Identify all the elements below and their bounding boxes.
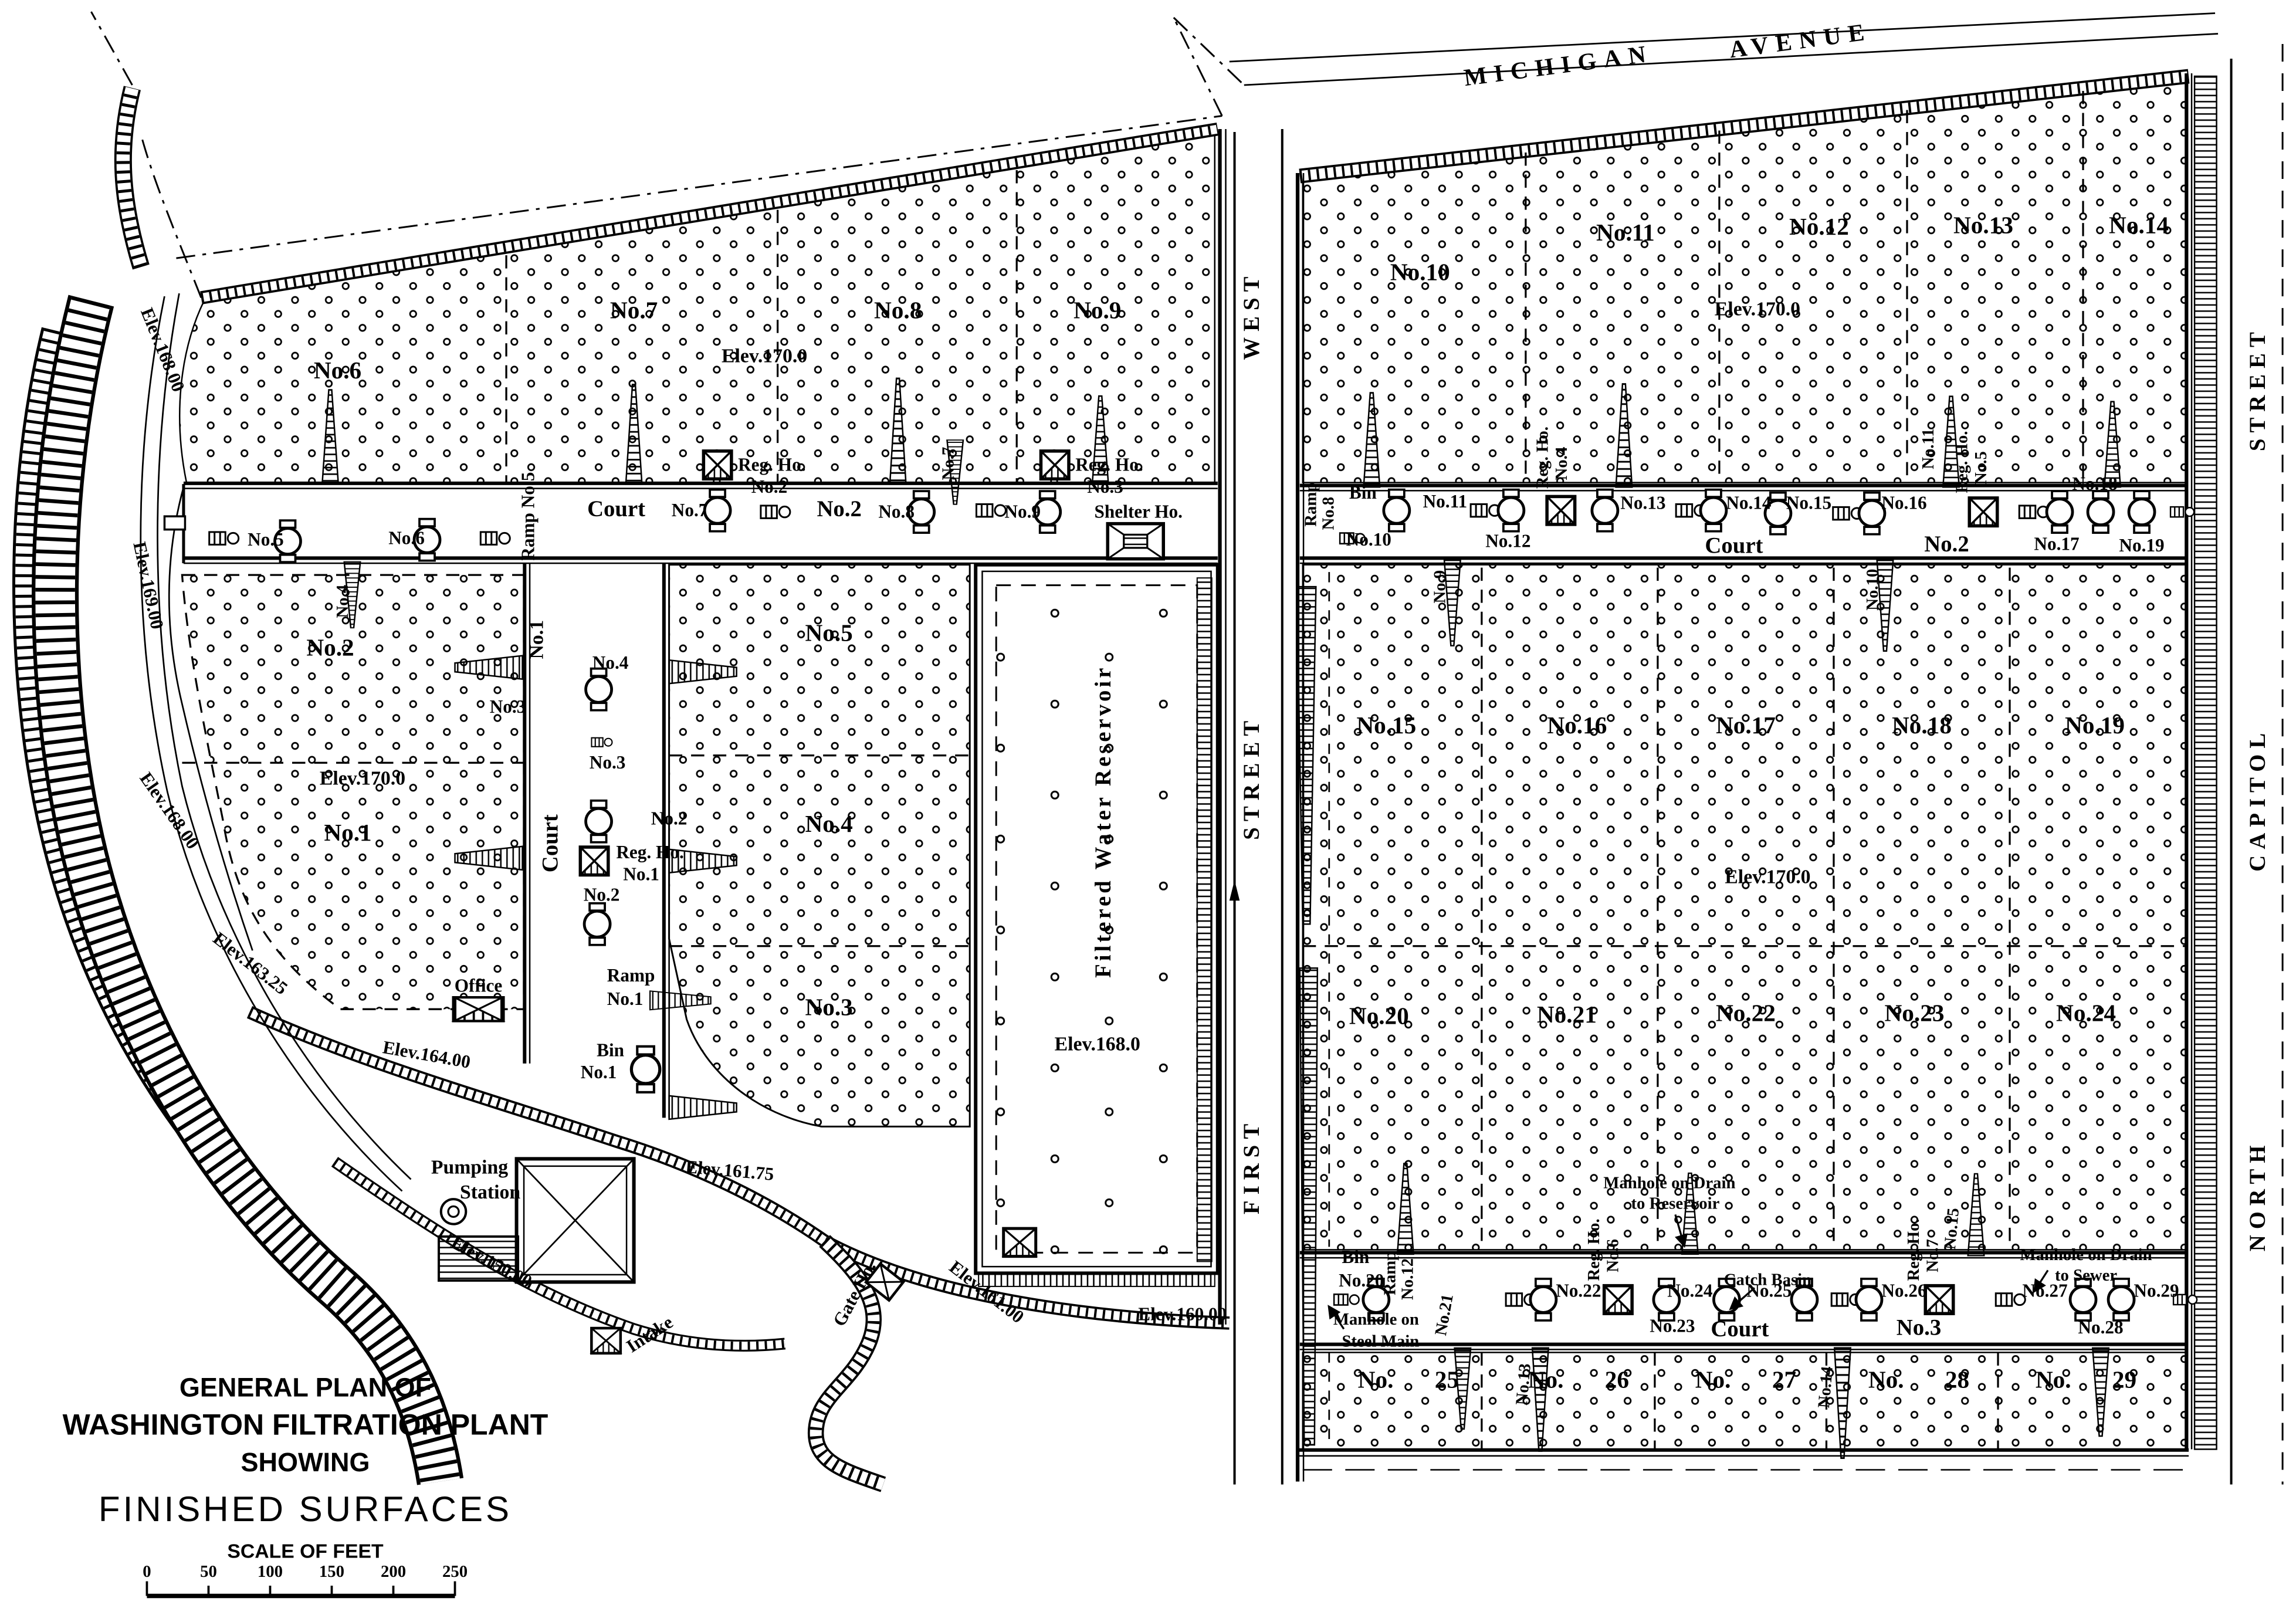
court-number-label: No.2 <box>817 496 861 522</box>
pumping-station-label: Pumping <box>431 1156 508 1178</box>
pumping-station-label: Station <box>460 1181 520 1203</box>
bin-label: No.18 <box>2072 473 2117 494</box>
regho-label: Reg. Ho. <box>1075 455 1143 475</box>
valve-icon <box>1996 1294 2025 1306</box>
title-line: WASHINGTON FILTRATION PLANT <box>63 1408 548 1441</box>
plan-page: MICHIGAN AVENUE WEST STREET FIRST STREET… <box>0 0 2296 1615</box>
bed-label: No. 26 <box>1528 1366 1629 1393</box>
bed-label: No.17 <box>1716 712 1776 739</box>
bed-label: No.8 <box>874 297 922 324</box>
bin-label: No.16 <box>1881 493 1926 513</box>
bin-icon <box>1498 490 1524 531</box>
east-mid-beds <box>1303 565 2186 1250</box>
regho-label: No.1 <box>623 864 659 884</box>
court-number-label: No.2 <box>1924 531 1969 557</box>
bed-label: No.3 <box>805 993 852 1020</box>
bin-label: No.6 <box>388 528 425 549</box>
reservoir-label: Filtered Water Reservoir <box>1091 665 1116 978</box>
bin-icon <box>631 1047 659 1092</box>
valve-icon <box>2170 507 2194 517</box>
valve-icon <box>2019 506 2048 519</box>
bin-icon <box>584 903 610 945</box>
ramp-label: No.12 <box>1398 1258 1417 1300</box>
bed-label: No.14 <box>2109 212 2169 239</box>
north-capitol-label: NORTH <box>2245 1139 2270 1251</box>
scale-tick: 50 <box>200 1562 217 1581</box>
elevation-label: Elev.160.00 <box>1138 1303 1227 1324</box>
title-line: FINISHED SURFACES <box>99 1489 512 1529</box>
bin-label: Bin <box>1349 482 1377 503</box>
regulator-house-icon <box>1041 451 1069 479</box>
bed-label: No.22 <box>1716 999 1776 1026</box>
elevation-label: Elev.169.00 <box>129 540 168 631</box>
bin-label: No.10 <box>1346 529 1391 550</box>
manhole-label: to Reservoir <box>1631 1194 1719 1213</box>
scale-tick: 0 <box>143 1562 151 1581</box>
regho-label: Reg. Ho. <box>1953 431 1972 493</box>
bin-icon <box>1592 490 1618 531</box>
valve-icon <box>591 738 612 747</box>
elevation-label: Elev.161.75 <box>685 1156 775 1184</box>
bed-label: No.13 <box>1953 212 2013 239</box>
manhole-label: Manhole on Drain <box>2020 1245 2152 1264</box>
manhole-label: Manhole on Drain <box>1603 1173 1735 1192</box>
court-number-label: No.3 <box>1897 1315 1941 1340</box>
court-label: Court <box>1711 1316 1769 1342</box>
bin-label: No.11 <box>1423 491 1468 512</box>
bed-label: No.5 <box>805 619 852 646</box>
street-arrow <box>1230 880 1240 900</box>
bin-label: Bin <box>1342 1247 1369 1267</box>
ramp-label: Ramp <box>1380 1251 1399 1295</box>
bin-label: No.14 <box>1726 493 1772 513</box>
regho-label: Reg. Ho. <box>1584 1218 1603 1281</box>
regulator-house-icon <box>580 847 608 875</box>
bed-label: No. 28 <box>1868 1366 1969 1393</box>
scale-tick: 150 <box>319 1562 344 1581</box>
bin-label: No.5 <box>248 529 284 550</box>
bin-label: Bin <box>597 1040 624 1060</box>
bin-label: No.1 <box>581 1062 617 1082</box>
bin-label: No.26 <box>1881 1280 1926 1301</box>
bin-label: No.25 <box>1746 1280 1792 1301</box>
west-mid-beds <box>669 565 970 1127</box>
scale-tick: 100 <box>258 1562 283 1581</box>
intake-structure <box>591 1328 621 1353</box>
bed-label: No. 25 <box>1358 1366 1459 1393</box>
shelter-house-label: Shelter Ho. <box>1095 502 1183 522</box>
regho-label: No.6 <box>1603 1239 1622 1272</box>
court-label: Court <box>1705 533 1763 558</box>
ramp-label: No.1 <box>607 988 644 1009</box>
scale-label: SCALE OF FEET <box>227 1540 384 1562</box>
shelter-house-building <box>1108 524 1163 559</box>
ramp-label: No.15 <box>1941 1207 1963 1251</box>
title-line: SHOWING <box>241 1447 370 1477</box>
regulator-house-icon <box>1547 496 1575 524</box>
bin-icon <box>2129 491 2155 533</box>
first-street-label: STREET <box>1239 715 1264 840</box>
bin-label: No.3 <box>590 752 626 773</box>
ramp-label: No.7 <box>939 447 958 480</box>
regho-label: No.3 <box>1087 476 1123 497</box>
regho-label: No.5 <box>1972 451 1990 485</box>
ramp-label: No.14 <box>1814 1366 1837 1409</box>
bin-label: No.7 <box>672 500 708 520</box>
bed-label: No.16 <box>1547 712 1607 739</box>
valve-icon <box>209 532 239 545</box>
ramp-label: No.21 <box>1431 1293 1457 1338</box>
bin-label: No.8 <box>878 502 915 522</box>
elevation-label: Elev.170.0 <box>1715 299 1800 320</box>
bin-label: No.19 <box>2119 535 2164 556</box>
valve-icon <box>480 532 510 545</box>
bin-icon <box>1701 490 1726 531</box>
bin-label: No.2 <box>584 884 620 905</box>
reservoir-south-hatch <box>978 1273 1215 1286</box>
bin-label: No.24 <box>1667 1280 1713 1301</box>
reservoir-gatehouse-icon <box>1004 1228 1036 1257</box>
bin-icon <box>2070 1279 2096 1321</box>
bin-label: No.15 <box>1786 493 1831 513</box>
bin-label: No.12 <box>1485 531 1530 551</box>
bed-label: No.19 <box>2065 712 2125 739</box>
bed-label: No.21 <box>1537 1001 1597 1028</box>
bed-label: No. 29 <box>2036 1366 2136 1393</box>
bin-label: No.22 <box>1556 1280 1601 1301</box>
regulator-house-icon <box>703 451 732 479</box>
ramp-label: Ramp <box>607 965 655 986</box>
bed-label: No. 27 <box>1695 1366 1796 1393</box>
court-number-label: No.1 <box>526 620 548 659</box>
bin-label: No.4 <box>592 652 629 673</box>
ramp-label: No.10 <box>1863 569 1882 611</box>
elevation-label: Elev.168.0 <box>1055 1033 1140 1055</box>
manhole-label: Manhole on <box>1333 1310 1419 1329</box>
bed-label: No.24 <box>2056 999 2116 1026</box>
elevation-label: Elev.170.0 <box>320 768 405 790</box>
regho-label: No.7 <box>1923 1239 1942 1272</box>
regho-label: No.2 <box>751 476 788 497</box>
bed-label: No.20 <box>1349 1002 1409 1029</box>
valve-icon <box>976 504 1005 517</box>
ramp-label: Ramp <box>1301 483 1320 527</box>
first-street-label: WEST <box>1239 271 1264 360</box>
title-block: GENERAL PLAN OF WASHINGTON FILTRATION PL… <box>63 1372 548 1596</box>
bin-icon <box>1530 1279 1556 1321</box>
office-label: Office <box>455 975 503 996</box>
michigan-avenue-label: MICHIGAN <box>1462 39 1655 91</box>
bin-label: No.13 <box>1620 493 1665 513</box>
bed-label: No.6 <box>314 357 361 384</box>
elevation-label: Elev.170.0 <box>722 346 807 367</box>
bin-label: No.9 <box>1004 502 1041 522</box>
ramp-label: Ramp No.5 <box>518 472 539 561</box>
bed-label: No.1 <box>324 819 371 846</box>
bin-label: No.29 <box>2134 1280 2179 1301</box>
regho-label: Reg. Ho. <box>1904 1218 1923 1281</box>
bed-label: No.18 <box>1892 712 1952 739</box>
ramp-label: No.3 <box>490 696 526 717</box>
bin-icon <box>1384 490 1410 531</box>
bed-label: No.11 <box>1596 219 1655 246</box>
east-wall-hatch <box>2195 76 2217 1449</box>
elevation-label: Elev.168.00 <box>136 768 203 853</box>
regulator-house-icon <box>1925 1286 1953 1314</box>
bin-icon <box>705 490 730 531</box>
regho-label: Reg. Ho. <box>738 455 805 475</box>
court-label: Court <box>538 814 563 872</box>
bin-label: No.28 <box>2078 1317 2123 1338</box>
scale-bar: 0 50 100 150 200 250 <box>143 1562 468 1596</box>
valve-icon <box>1471 504 1500 517</box>
bed-label: No.23 <box>1884 999 1944 1026</box>
regho-label: Reg. Ho. <box>1533 426 1552 489</box>
court-label: Court <box>587 496 645 522</box>
ramp-label: No.9 <box>1430 570 1449 604</box>
bin-label: No.23 <box>1650 1315 1695 1336</box>
regho-label: Reg. Ho. <box>616 842 683 862</box>
regulator-house-icon <box>1604 1286 1633 1314</box>
bed-label: No.15 <box>1356 712 1416 739</box>
bin-icon <box>2108 1279 2134 1321</box>
bed-label: No.2 <box>306 634 354 661</box>
scale-tick: 250 <box>442 1562 468 1581</box>
manhole-label: Steel Main <box>1342 1332 1419 1350</box>
ramp-label: No.13 <box>1512 1363 1535 1406</box>
bin-icon <box>1856 1279 1882 1321</box>
ramp-label: No.4 <box>333 585 352 618</box>
valve-icon <box>761 506 790 519</box>
office-building <box>454 997 503 1021</box>
valve-icon <box>1334 1294 1359 1305</box>
regho-label: No.4 <box>1552 447 1571 480</box>
ramp-label: No.8 <box>1319 497 1337 530</box>
bin-icon <box>2088 491 2114 533</box>
elevation-label: Elev.170.0 <box>1725 866 1810 888</box>
title-line: GENERAL PLAN OF <box>180 1372 431 1402</box>
ramp-label: No.2 <box>651 808 688 828</box>
plan-canvas: MICHIGAN AVENUE WEST STREET FIRST STREET… <box>0 0 2296 1615</box>
bed-label: No.4 <box>805 810 852 837</box>
first-street-label: FIRST <box>1239 1118 1264 1214</box>
north-capitol-label: STREET <box>2245 326 2270 451</box>
bin-icon <box>586 669 612 710</box>
bin-icon <box>2047 491 2073 533</box>
north-capitol-label: CAPITOL <box>2245 727 2270 872</box>
ramp-label: No.11 <box>1919 428 1938 469</box>
bed-label: No.7 <box>610 297 658 324</box>
bin-label: No.27 <box>2022 1280 2067 1301</box>
bin-label: No.20 <box>1339 1270 1384 1291</box>
regulator-house-icon <box>1969 498 1997 526</box>
bed-label: No.9 <box>1074 297 1121 324</box>
bin-label: No.17 <box>2034 534 2079 554</box>
reservoir-east-hatch <box>1197 578 1212 1261</box>
bed-label: No.10 <box>1390 259 1450 286</box>
elevation-label: Elev.168.00 <box>137 305 189 395</box>
bin-icon <box>586 801 612 842</box>
bed-label: No.12 <box>1789 213 1849 240</box>
scale-tick: 200 <box>381 1562 406 1581</box>
intake-label: Intake <box>622 1312 676 1357</box>
